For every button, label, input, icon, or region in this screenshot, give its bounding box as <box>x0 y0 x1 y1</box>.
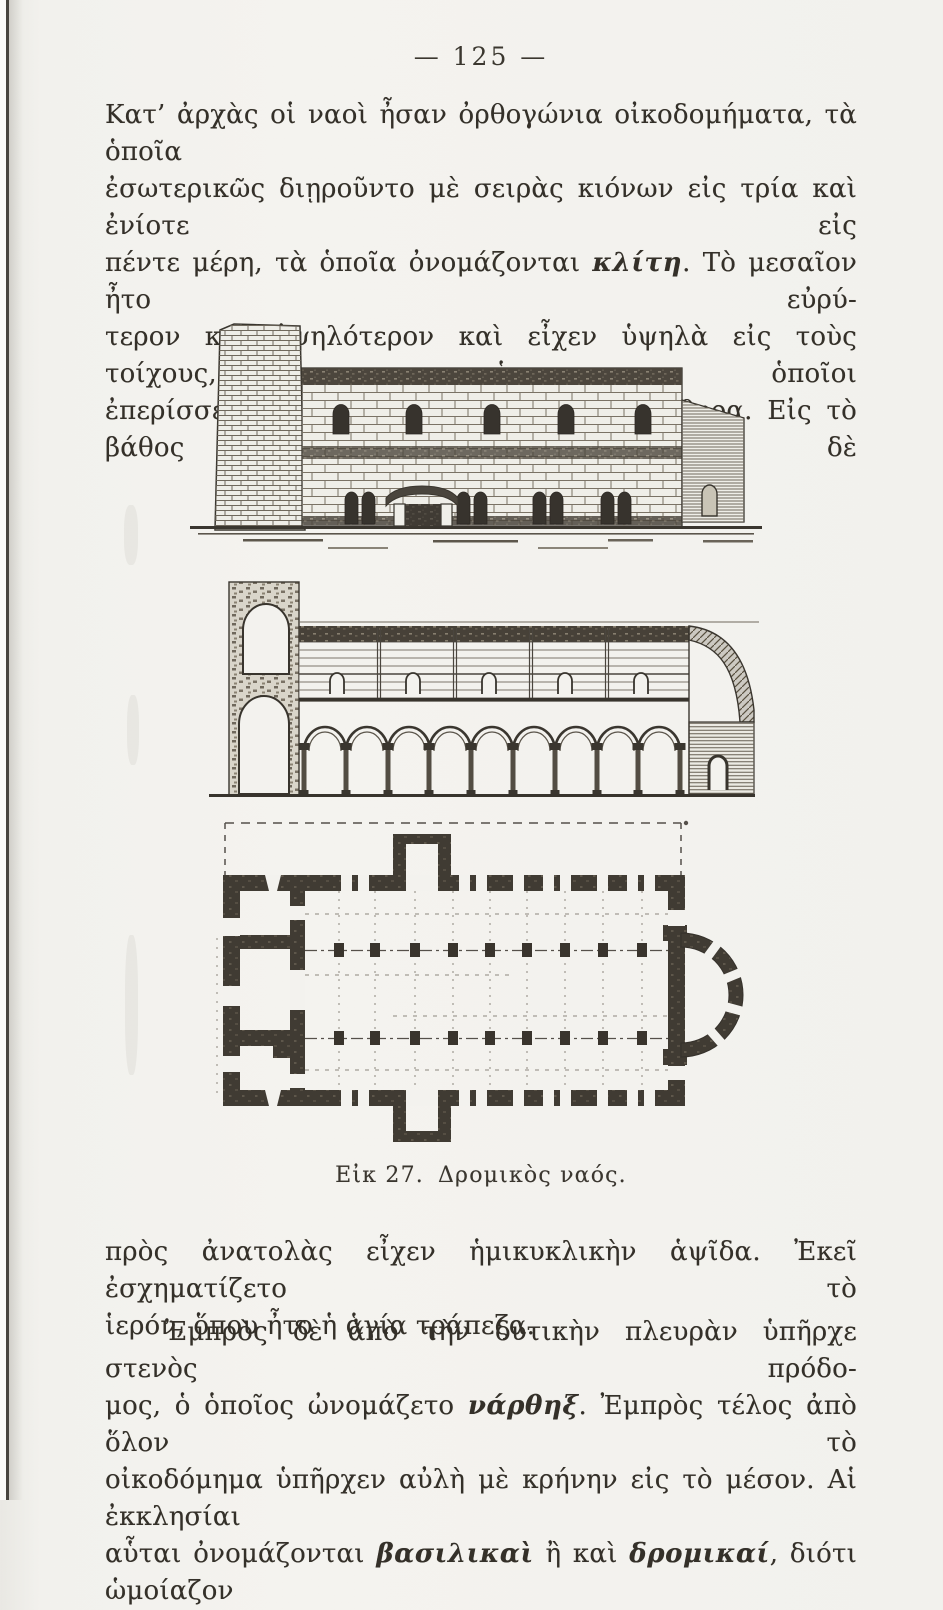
section-apse <box>689 626 754 794</box>
text-line: αὗται ὀνομάζονται βασιλικαὶ ἢ καὶ δρομικ… <box>105 1536 857 1610</box>
figure-caption-title: Δρομικὸς ναός. <box>438 1163 627 1188</box>
roof-band <box>299 626 689 642</box>
bold-term: κλίτη <box>592 248 682 278</box>
construction-lines <box>305 891 668 1090</box>
bold-term: βασιλικαὶ <box>376 1539 533 1569</box>
main-door <box>386 486 458 526</box>
text-line: Κατ’ ἀρχὰς οἱ ναοὶ ἦσαν ὀρθογώνια οἰκοδο… <box>105 97 857 171</box>
basilica-floor-plan-drawing <box>213 818 758 1153</box>
column-icon <box>466 743 477 795</box>
section-baseline <box>209 794 755 797</box>
page-number: — 125 — <box>105 42 857 71</box>
aisle-roof-line <box>299 698 689 702</box>
basilica-section-drawing <box>203 568 761 806</box>
north-porch <box>393 834 451 877</box>
text-line: Ἐμπρὸς δὲ ἀπὸ τὴν δυτικὴν πλευρὰν ὑπῆρχε… <box>105 1314 857 1388</box>
text-line: οἰκοδόμημα ὑπῆρχεν αὐλὴ μὲ κρήνην εἰς τὸ… <box>105 1462 857 1536</box>
clerestory-window-icon <box>406 673 420 694</box>
aisle-roof-band <box>302 446 682 459</box>
figure-27: Εἰκ 27.Δρομικὸς ναός. <box>0 318 943 1218</box>
clerestory-window-icon <box>634 673 648 694</box>
text-run: πρὸς ἀνατολὰς εἶχεν ἡμικυκλικὴν ἁψῖδα. Ἐ… <box>105 1237 857 1304</box>
apse-window-icon <box>709 756 727 790</box>
text-run: μος, ὁ ὁποῖος ὠνομάζετο <box>105 1391 468 1421</box>
bold-term: νάρθηξ <box>468 1391 579 1421</box>
room-divider <box>240 935 290 949</box>
annex-window-icon <box>702 485 717 516</box>
column-bases <box>334 943 647 1045</box>
room-divider <box>240 1030 305 1046</box>
basilica-elevation-drawing <box>188 320 768 555</box>
column-icon <box>508 743 519 795</box>
paragraph: Ἐμπρὸς δὲ ἀπὸ τὴν δυτικὴν πλευρὰν ὑπῆρχε… <box>105 1314 857 1610</box>
figure-caption-label: Εἰκ 27. <box>335 1163 424 1188</box>
figure-caption: Εἰκ 27.Δρομικὸς ναός. <box>105 1163 857 1188</box>
text-run: Κατ’ ἀρχὰς οἱ ναοὶ ἦσαν ὀρθογώνια οἰκοδο… <box>105 100 857 167</box>
clerestory-window-icon <box>406 405 422 435</box>
clerestory-window-icon <box>558 405 574 435</box>
clerestory-window-icon <box>635 405 651 435</box>
text-run: πέντε μέρη, τὰ ὁποῖα ὀνομάζονται <box>105 248 592 278</box>
text-line: πέντε μέρη, τὰ ὁποῖα ὀνομάζονται κλίτη. … <box>105 245 857 319</box>
column-icon <box>550 743 561 795</box>
text-line: μος, ὁ ὁποῖος ὠνομάζετο νάρθηξ. Ἐμπρὸς τ… <box>105 1388 857 1462</box>
text-line: ἐσωτερικῶς διῃροῦντο μὲ σειρὰς κιόνων εἰ… <box>105 171 857 245</box>
room-divider-stub <box>273 1030 295 1058</box>
tower-lower-arch <box>239 696 289 794</box>
south-wall <box>223 1090 685 1106</box>
side-annex <box>682 400 744 522</box>
clerestory-window-icon <box>482 673 496 694</box>
text-line: πρὸς ἀνατολὰς εἶχεν ἡμικυκλικὴν ἁψῖδα. Ἐ… <box>105 1234 857 1308</box>
apse <box>681 933 745 1057</box>
roof-band <box>302 368 682 385</box>
section-tower <box>229 582 299 796</box>
column-icon <box>383 743 394 795</box>
tower-upper-arch <box>243 604 289 674</box>
text-run: Ἐμπρὸς δὲ ἀπὸ τὴν δυτικὴν πλευρὰν ὑπῆρχε… <box>105 1317 857 1384</box>
north-wall <box>223 875 685 891</box>
south-porch <box>393 1103 451 1142</box>
clerestory-window-icon <box>484 405 500 435</box>
bold-term: δρομικαί <box>629 1539 769 1569</box>
column-icon <box>675 743 686 795</box>
column-icon <box>341 743 352 795</box>
clerestory-window-icon <box>330 673 344 694</box>
nave-arcade <box>299 727 686 795</box>
scanned-book-page: { "page": { "number": "— 125 —" }, "para… <box>0 0 943 1500</box>
clerestory-window-icon <box>333 405 349 435</box>
text-run: αὗται ὀνομάζονται <box>105 1539 376 1569</box>
bell-tower <box>215 324 305 530</box>
text-run: οἰκοδόμημα ὑπῆρχεν αὐλὴ μὲ κρήνην εἰς τὸ… <box>105 1465 857 1532</box>
column-icon <box>299 743 310 795</box>
text-run: ἢ καὶ <box>534 1539 630 1569</box>
clerestory-window-icon <box>558 673 572 694</box>
text-run: ἐσωτερικῶς διῃροῦντο μὲ σειρὰς κιόνων εἰ… <box>105 174 857 241</box>
column-icon <box>592 743 603 795</box>
